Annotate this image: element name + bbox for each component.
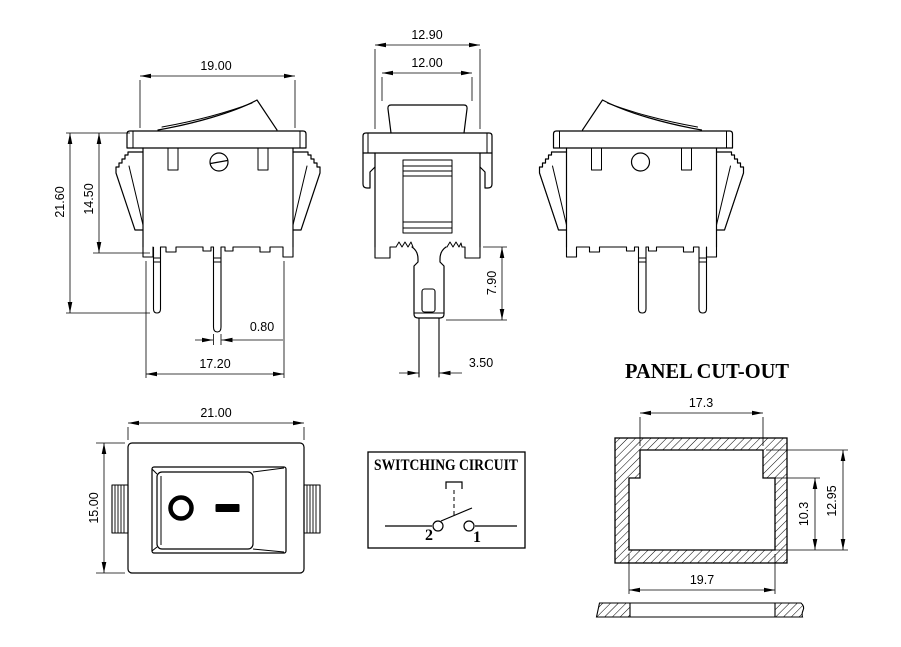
pivot-hole xyxy=(632,153,650,171)
switch-housing-outline-mirrored xyxy=(540,100,744,257)
dim-text-10-3: 10.3 xyxy=(797,502,811,526)
bottom-feet-side xyxy=(375,247,480,258)
dim-text-15-00: 15.00 xyxy=(87,492,101,523)
dim-text-12-90: 12.90 xyxy=(411,28,442,42)
panel-cutout-title: PANEL CUT-OUT xyxy=(625,359,789,383)
flange-hook-right xyxy=(480,153,492,188)
dim-front-body-height: 14.50 xyxy=(82,133,150,253)
switch-lever xyxy=(441,508,472,521)
marking-off-symbol xyxy=(171,498,192,519)
dim-text-19-00: 19.00 xyxy=(200,59,231,73)
dim-terminal-width: 3.50 xyxy=(399,356,493,373)
dim-front-total-height: 21.60 xyxy=(53,133,150,313)
switching-circuit: SWITCHING CIRCUIT 2 1 xyxy=(368,452,525,548)
dim-text-17-20: 17.20 xyxy=(199,357,230,371)
cutout-outline xyxy=(615,438,787,563)
mounting-ear-left xyxy=(112,485,128,533)
dim-text-12-00: 12.00 xyxy=(411,56,442,70)
dim-text-12-95: 12.95 xyxy=(825,485,839,516)
dim-text-17-3: 17.3 xyxy=(689,396,713,410)
dim-text-7-90: 7.90 xyxy=(485,271,499,295)
dim-text-21-60: 21.60 xyxy=(53,186,67,217)
terminal-hole xyxy=(422,289,435,312)
dim-top-width: 21.00 xyxy=(128,406,304,440)
actuator-bracket xyxy=(446,482,462,489)
marking-on-symbol xyxy=(216,504,240,512)
dim-text-19-7: 19.7 xyxy=(690,573,714,587)
dim-text-21-00: 21.00 xyxy=(200,406,231,420)
break-marks xyxy=(396,242,462,247)
dim-side-flange-width: 12.90 xyxy=(375,28,480,129)
technical-drawing-sheet: 19.00 21.60 14.50 0.80 17.20 xyxy=(0,0,901,647)
terminal-2-contact xyxy=(433,521,443,531)
terminal-2-label: 2 xyxy=(425,527,433,544)
panel-section-strip xyxy=(597,603,804,617)
terminal-pins-rear xyxy=(639,247,707,313)
front-view: 19.00 21.60 14.50 0.80 17.20 xyxy=(53,59,320,378)
terminal-1-label: 1 xyxy=(473,529,481,546)
dim-top-height: 15.00 xyxy=(87,443,125,573)
label-plate xyxy=(403,160,452,233)
top-view: 21.00 15.00 xyxy=(87,406,320,573)
panel-material-hatch xyxy=(615,438,787,563)
screw-detail xyxy=(210,153,228,171)
flange-hook-left xyxy=(363,153,375,188)
circuit-symbol xyxy=(385,482,517,531)
dim-pin-width: 0.80 xyxy=(195,320,283,345)
side-view: 12.90 12.00 7.90 3.50 xyxy=(363,28,507,377)
dim-side-body-width: 12.00 xyxy=(382,56,472,101)
panel-cutout: PANEL CUT-OUT 17.3 10.3 12.95 1 xyxy=(597,359,849,617)
rear-view xyxy=(540,100,744,313)
mounting-ear-right xyxy=(304,485,320,533)
bezel-flange-side xyxy=(363,133,492,153)
dim-text-3-50: 3.50 xyxy=(469,356,493,370)
rocker-switch-drawing: 19.00 21.60 14.50 0.80 17.20 xyxy=(0,0,901,647)
switch-housing-outline xyxy=(116,100,320,257)
dim-text-14-50: 14.50 xyxy=(82,183,96,214)
circuit-title: SWITCHING CIRCUIT xyxy=(374,457,518,474)
rocker-knob-side xyxy=(388,105,467,133)
faston-terminal xyxy=(412,247,446,377)
terminal-pins xyxy=(154,247,222,332)
dim-front-top-width: 19.00 xyxy=(140,59,295,128)
dim-text-0-80: 0.80 xyxy=(250,320,274,334)
